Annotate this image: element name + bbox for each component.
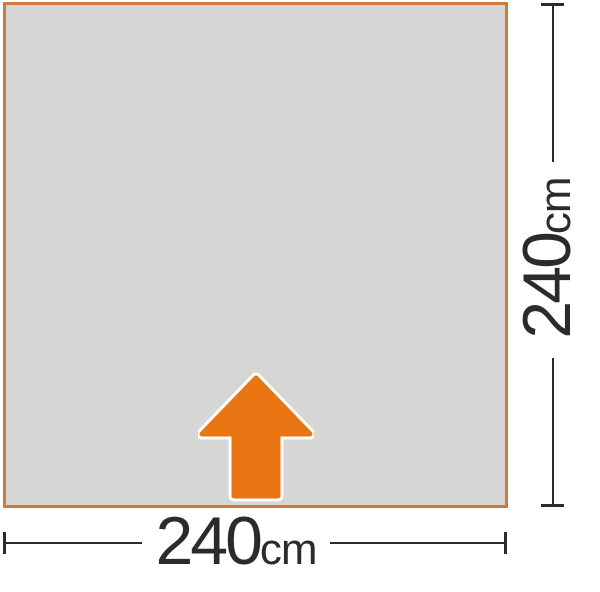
- height-dim-line-upper: [552, 5, 554, 162]
- width-unit: cm: [260, 525, 317, 574]
- width-dimension-label: 240cm: [140, 507, 332, 577]
- height-dimension-label: 240cm: [513, 158, 589, 358]
- height-dim-bottom-tick: [541, 504, 564, 507]
- width-dim-right-tick: [504, 532, 507, 554]
- width-dim-line-right: [330, 542, 506, 544]
- entrance-up-arrow-icon: [198, 372, 314, 502]
- width-value: 240: [155, 503, 259, 579]
- width-dim-line-left: [5, 542, 142, 544]
- dimension-diagram: 240cm 240cm: [0, 0, 600, 592]
- height-value: 240: [509, 234, 585, 338]
- height-unit: cm: [531, 177, 580, 234]
- height-dim-line-lower: [552, 358, 554, 506]
